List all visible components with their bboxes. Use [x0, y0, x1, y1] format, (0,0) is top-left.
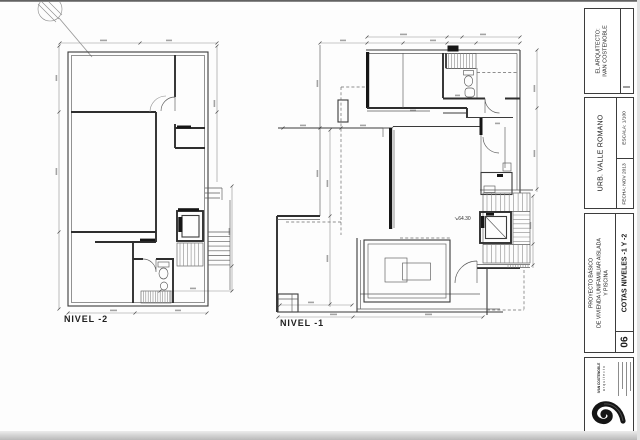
sheet-column: COTAS NIVELES -1 Y -2 06: [615, 214, 633, 352]
logo-box: IVAN COSTENOBLE arquitecto: [584, 357, 634, 432]
floor-plans-drawing: [0, 0, 640, 440]
level-elevation-marker: ↘64.30: [454, 216, 471, 222]
urbanization-label: URB. VALLE ROMANO: [597, 115, 604, 192]
level-elevation-value: 64.30: [458, 216, 471, 222]
scale-cell: ESCALA: 1/100: [617, 98, 633, 159]
architect-heading: EL ARQUITECTO:: [595, 25, 602, 77]
nivel-2-dimension-lines: [56, 40, 234, 315]
nivel-1-pool-terrace: [353, 128, 524, 315]
nivel-2-label: NIVEL -2: [64, 314, 108, 324]
nivel-2-walls: [68, 52, 208, 306]
date-label: FECHA: NOV 2013: [623, 163, 628, 204]
project-line-1: PROYECTO BÁSICO: [589, 238, 597, 328]
address-text-lines: [618, 362, 631, 396]
project-title-cell: PROYECTO BÁSICO DE VIVIENDA UNIFAMILIAR …: [585, 214, 615, 352]
sheet-number: 06: [619, 336, 630, 347]
project-box: PROYECTO BÁSICO DE VIVIENDA UNIFAMILIAR …: [584, 213, 634, 353]
nivel-1-label: NIVEL -1: [280, 318, 324, 328]
sheet-title-cell: COTAS NIVELES -1 Y -2: [616, 214, 633, 331]
logo-cell: IVAN COSTENOBLE arquitecto: [585, 358, 633, 431]
nautilus-shell-icon: [591, 400, 627, 428]
scale-label: ESCALA: 1/100: [623, 111, 628, 145]
drawing-sheet: NIVEL -2 NIVEL -1 ↘64.30 EL ARQUITECTO: …: [0, 0, 640, 440]
scale-date-column: ESCALA: 1/100 FECHA: NOV 2013: [616, 98, 633, 208]
north-arrow-icon: [38, 0, 92, 57]
signature-mark: [623, 86, 630, 88]
signature-cell: [620, 9, 633, 93]
scan-edge-top: [0, 0, 640, 2]
nivel-2-elevator: [177, 208, 203, 241]
sheet-title: COTAS NIVELES -1 Y -2: [621, 233, 628, 312]
nivel-2-plan: [56, 40, 234, 315]
architect-name: IVAN COSTENOBLE: [603, 25, 610, 77]
nivel-1-roof-hatch: [446, 46, 476, 69]
sheet-number-cell: 06: [616, 331, 633, 352]
urbanization-cell: URB. VALLE ROMANO: [585, 98, 616, 208]
nivel-1-plan: [277, 34, 539, 319]
title-block: EL ARQUITECTO: IVAN COSTENOBLE URB. VALL…: [584, 8, 634, 432]
project-line-3: Y PISCINA: [604, 238, 612, 328]
location-box: URB. VALLE ROMANO ESCALA: 1/100 FECHA: N…: [584, 97, 634, 209]
logo-subtitle: arquitecto: [602, 363, 607, 393]
date-cell: FECHA: NOV 2013: [617, 159, 633, 208]
architect-cell: EL ARQUITECTO: IVAN COSTENOBLE: [585, 9, 620, 93]
nivel-1-elevator: [480, 212, 511, 243]
architect-box: EL ARQUITECTO: IVAN COSTENOBLE: [584, 8, 634, 94]
nivel-1-left-wing: [277, 45, 392, 312]
project-line-2: DE VIVIENDA UNIFAMILIAR AISLADA: [596, 238, 604, 328]
scan-edge-bottom: [0, 431, 640, 440]
